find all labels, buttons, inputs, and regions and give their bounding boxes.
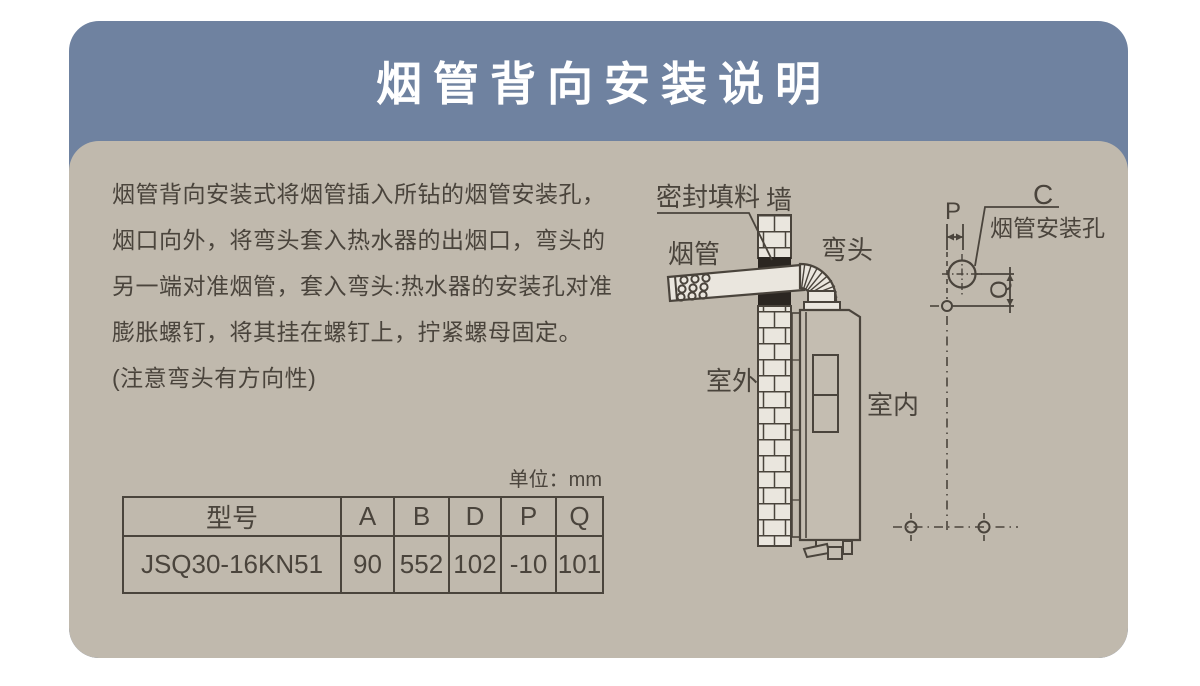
page-title: 烟管背向安装说明 bbox=[365, 48, 832, 114]
spec-table-data-row: JSQ30-16KN51 90 552 102 -10 101 bbox=[123, 536, 603, 593]
table-cell-model: JSQ30-16KN51 bbox=[123, 536, 341, 593]
table-header-q: Q bbox=[556, 497, 603, 536]
table-header-b: B bbox=[394, 497, 449, 536]
description: 烟管背向安装式将烟管插入所钻的烟管安装孔， 烟口向外，将弯头套入热水器的出烟口，… bbox=[112, 171, 632, 401]
instruction-page: 烟管背向安装说明 烟管背向安装式将烟管插入所钻的烟管安装孔， 烟口向外，将弯头套… bbox=[0, 0, 1200, 686]
card-body: 烟管背向安装式将烟管插入所钻的烟管安装孔， 烟口向外，将弯头套入热水器的出烟口，… bbox=[69, 141, 1128, 658]
table-cell-q: 101 bbox=[556, 536, 603, 593]
spec-table: 型号 A B D P Q JSQ30-16KN51 90 552 102 -10… bbox=[122, 496, 604, 594]
table-header-a: A bbox=[341, 497, 394, 536]
table-cell-p: -10 bbox=[501, 536, 556, 593]
spec-table-header-row: 型号 A B D P Q bbox=[123, 497, 603, 536]
table-header-d: D bbox=[449, 497, 501, 536]
description-line: 烟管背向安装式将烟管插入所钻的烟管安装孔， bbox=[112, 171, 632, 217]
card: 烟管背向安装说明 烟管背向安装式将烟管插入所钻的烟管安装孔， 烟口向外，将弯头套… bbox=[69, 21, 1128, 658]
table-header-p: P bbox=[501, 497, 556, 536]
table-cell-d: 102 bbox=[449, 536, 501, 593]
table-header-model: 型号 bbox=[123, 497, 341, 536]
card-header: 烟管背向安装说明 bbox=[69, 21, 1128, 141]
description-line: 另一端对准烟管，套入弯头:热水器的安装孔对准 bbox=[112, 263, 632, 309]
description-line: 膨胀螺钉，将其挂在螺钉上，拧紧螺母固定。 bbox=[112, 309, 632, 355]
unit-label: 单位：mm bbox=[401, 463, 602, 492]
description-line: 烟口向外，将弯头套入热水器的出烟口，弯头的 bbox=[112, 217, 632, 263]
table-cell-b: 552 bbox=[394, 536, 449, 593]
description-line: (注意弯头有方向性) bbox=[112, 355, 632, 401]
table-cell-a: 90 bbox=[341, 536, 394, 593]
